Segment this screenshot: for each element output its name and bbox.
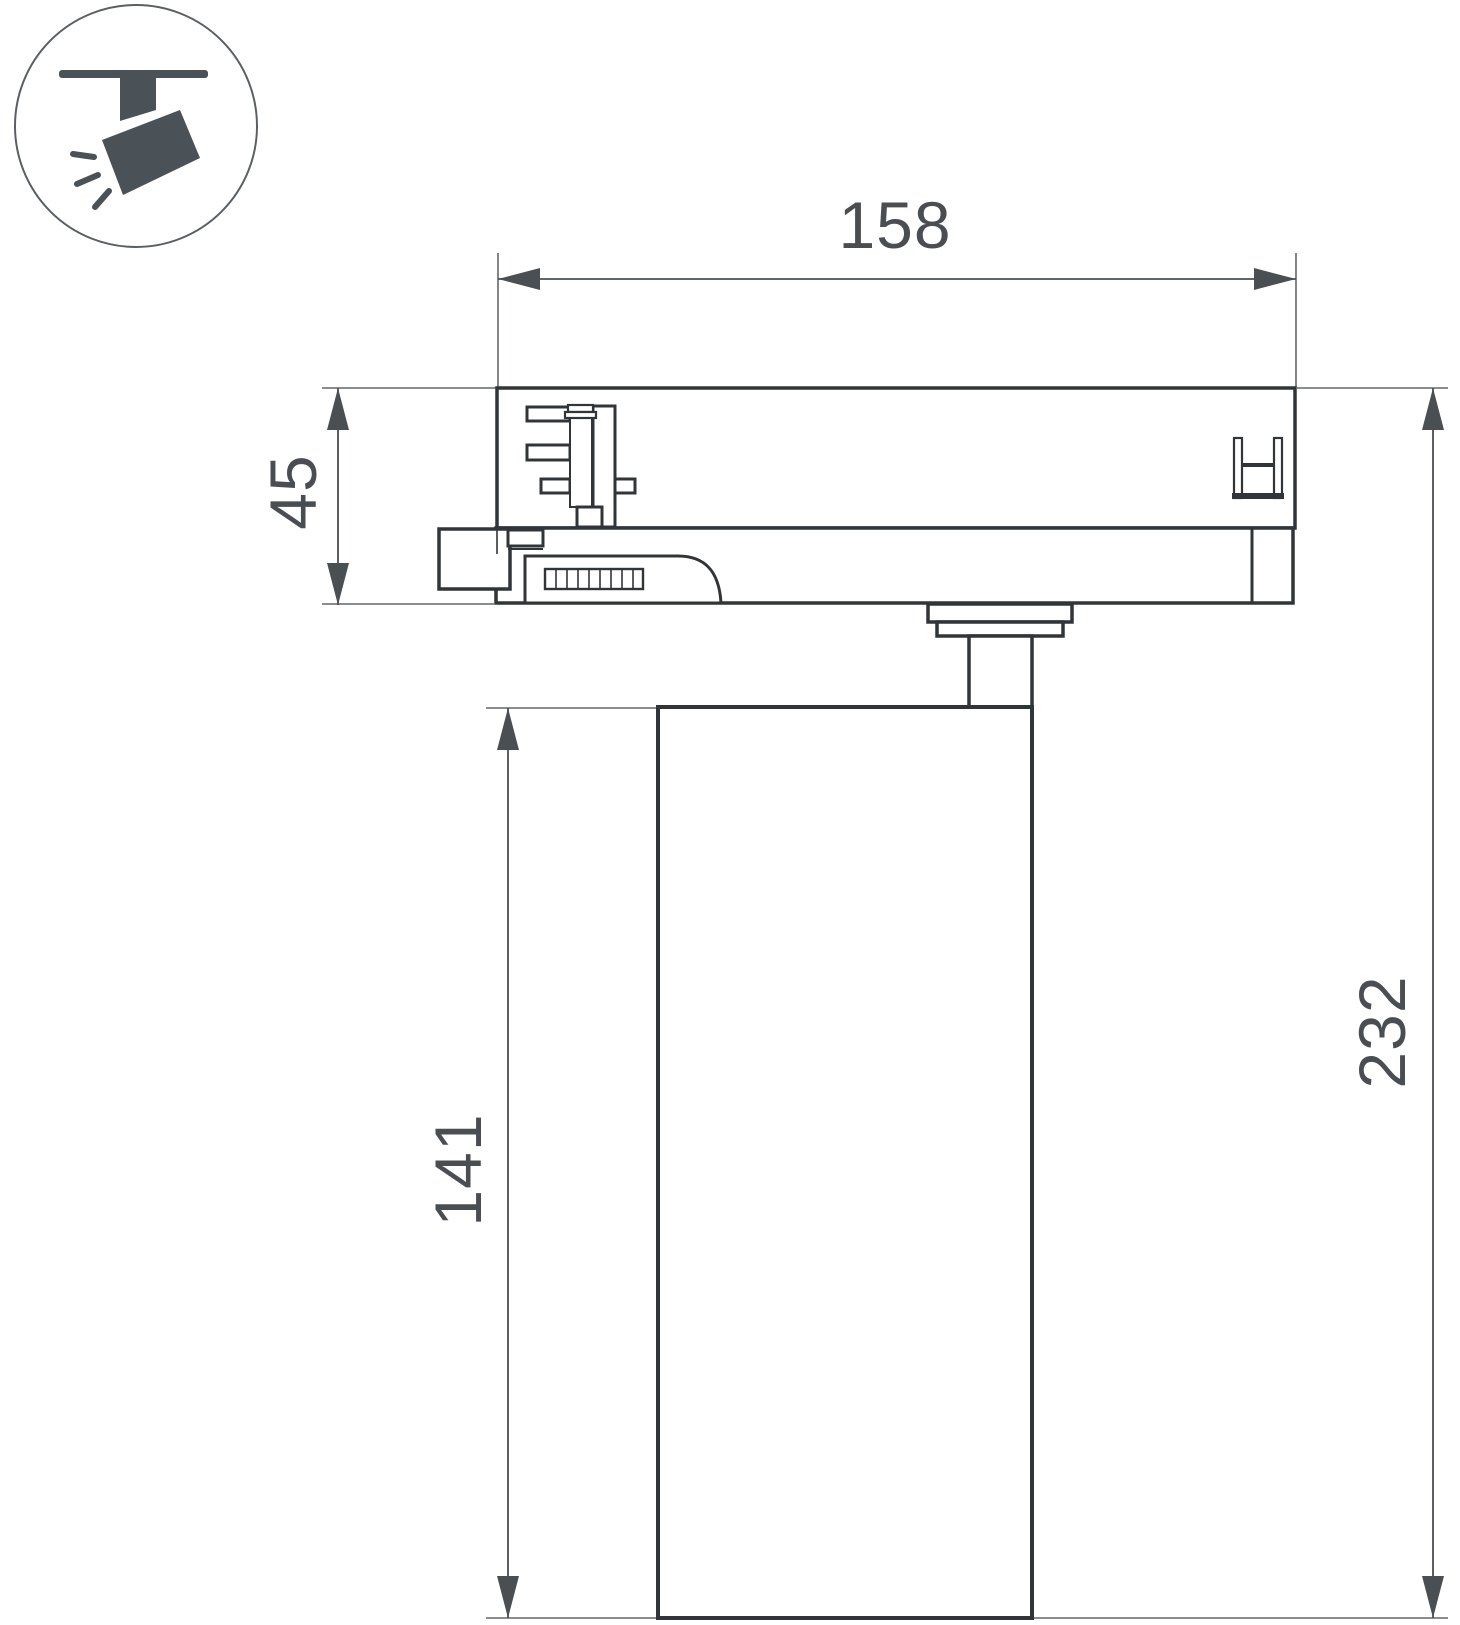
dim-label-adapter-height: 45 [256, 454, 330, 529]
stem-flange-lower [937, 622, 1063, 636]
lamp-body-cylinder [658, 707, 1032, 1618]
icon-light-rays [73, 154, 109, 207]
icon-lamp-body [102, 110, 200, 195]
contact-pin-foot [577, 507, 602, 527]
track-spotlight-icon [15, 5, 257, 247]
technical-drawing: 158 45 141 232 Ø90 [0, 0, 1460, 1625]
contact-prong-middle [527, 445, 570, 460]
pivot-stem [928, 604, 1072, 707]
stem-flange-upper [928, 604, 1072, 622]
slider-serration-box [545, 569, 643, 589]
dim-45 [327, 388, 349, 605]
arrowhead-down [497, 1576, 519, 1618]
latch-knob [439, 529, 510, 589]
dim-141 [497, 708, 519, 1618]
lock-wall-right [1274, 438, 1282, 498]
dim-label-body-height: 141 [421, 1113, 495, 1226]
arrowhead-down [1422, 1576, 1444, 1618]
adjustment-slider [525, 556, 721, 603]
track-adapter-housing [497, 388, 1295, 528]
arrowhead-right [1254, 268, 1296, 290]
arrowhead-up [497, 708, 519, 750]
dim-232 [1422, 388, 1444, 1618]
arrowhead-up [327, 388, 349, 430]
stem-column [969, 636, 1032, 707]
contact-pin [570, 417, 592, 507]
arrowhead-up [1422, 388, 1444, 430]
lock-wall-left [1234, 438, 1242, 498]
arrowhead-down [327, 563, 349, 605]
latch-detail-box [508, 530, 543, 546]
fixture-geometry [439, 388, 1295, 1618]
contact-step [615, 479, 635, 493]
dim-label-track-width: 158 [838, 188, 951, 262]
dim-label-total-height: 232 [1345, 975, 1419, 1088]
drawing-canvas: 158 45 141 232 Ø90 [0, 0, 1460, 1625]
arrowhead-left [498, 268, 540, 290]
contact-prong-top [527, 407, 570, 421]
dim-158 [498, 268, 1296, 290]
contact-prong-bottom [541, 479, 570, 493]
icon-circle-border [15, 5, 257, 247]
icon-ceiling-line [59, 70, 208, 78]
lock-base [1232, 493, 1284, 499]
icon-mount-stem [120, 78, 156, 121]
contact-pin-cap-lower [565, 412, 596, 418]
